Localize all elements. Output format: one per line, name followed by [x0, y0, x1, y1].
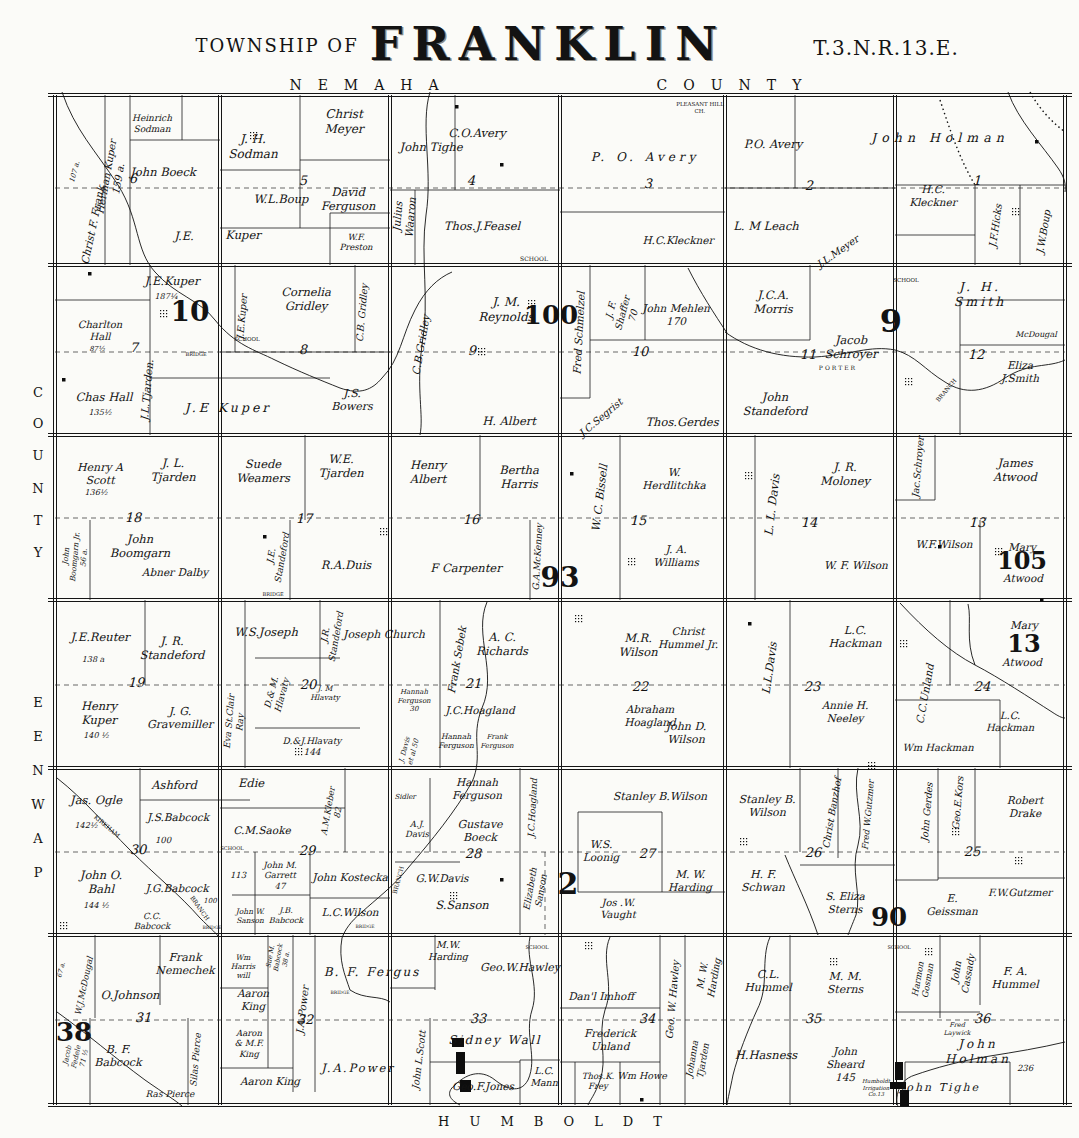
owner-label: L.C. Hackman	[986, 710, 1034, 734]
owner-label: W.J.McDougal	[73, 956, 96, 1016]
owner-label: Thos.Gerdes	[645, 415, 718, 429]
north-county-label: NEMAHA	[289, 77, 454, 94]
school-label: SCHOOL	[520, 255, 548, 262]
section-number: 16	[463, 512, 480, 528]
bridge-label: BRIDGE	[185, 351, 206, 357]
owner-label: 100	[203, 897, 216, 906]
owner-label: M. W. Harding	[693, 955, 723, 998]
owner-label: E. Geissman	[926, 892, 978, 918]
owner-label: L.C. Hackman	[828, 624, 881, 651]
owner-label: J. A. Williams	[653, 543, 699, 569]
owner-label: Geo.F.Jones	[452, 1080, 514, 1093]
owner-label: James Atwood	[993, 456, 1037, 484]
owner-label: Dan'l Imhoff	[568, 990, 634, 1003]
creek-label: BRANCH	[189, 894, 211, 921]
owner-label: J. G. Gravemiller	[147, 705, 213, 732]
owner-label: Cornelia Gridley	[281, 285, 331, 313]
owner-label: P.O. Avery	[744, 137, 802, 151]
owner-label: Herman Kuper 159 a.	[94, 139, 131, 217]
owner-label: J. H. Smith	[931, 279, 1030, 310]
section-number: 23	[804, 679, 821, 695]
owner-label: J.E.Reuter	[70, 630, 129, 644]
owner-label: Atwood	[1002, 656, 1042, 669]
township-range-label: T.3.N.R.13.E.	[813, 36, 959, 60]
owner-label: J.A.Power	[294, 985, 312, 1035]
plat-map: TOWNSHIP OFFRANKLINT.3.N.R.13.E.NEMAHACO…	[0, 0, 1079, 1138]
owner-label: Stanley B.Wilson	[613, 790, 707, 803]
owner-label: W.S. Loonig	[583, 838, 619, 864]
owner-label: Fred Laywick	[943, 1022, 970, 1038]
owner-label: 236	[1017, 1063, 1033, 1073]
owner-label: W. Herdlitchka	[642, 466, 705, 492]
owner-label: J. M. Reynolds	[478, 295, 534, 324]
owner-label: 144 ½	[83, 901, 109, 911]
owner-label: John Boomgarn Jr. 56 a.	[59, 531, 91, 583]
owner-label: Humboldt Irrigation Co.13	[862, 1078, 890, 1098]
owner-label: L.C. Mann	[530, 1065, 558, 1088]
owner-label: M. M. Sterns	[827, 970, 863, 997]
owner-label: L. L. Davis	[761, 473, 782, 536]
owner-label: J.E. Standeford	[262, 530, 292, 584]
owner-label: 100	[155, 835, 171, 845]
west-county-letter: W	[31, 797, 44, 813]
owner-label: L. M Leach	[733, 219, 799, 233]
owner-label: Thos.K. Frey	[582, 1071, 614, 1092]
owner-label: Hannah Ferguson 30	[397, 688, 430, 714]
map-title-prefix: TOWNSHIP OF	[195, 35, 358, 57]
owner-label: M. W. Harding	[668, 868, 712, 894]
owner-label: Hannah Ferguson	[438, 732, 474, 750]
section-number: 33	[470, 1011, 487, 1027]
owner-label: O.Johnson	[101, 988, 160, 1002]
owner-label: Eva St.Clair Ray	[222, 694, 249, 751]
owner-label: John W. Sanson	[236, 907, 264, 925]
owner-label: John Boeck	[130, 165, 196, 179]
owner-label: 187¼	[154, 292, 177, 302]
owner-label: Annie H. Neeley	[822, 699, 869, 725]
owner-label: John Kostecka	[312, 871, 388, 884]
owner-label: Jas. Ogle	[70, 793, 122, 807]
owner-label: R.A.Duis	[321, 558, 371, 572]
creek-label: BRANCH	[934, 377, 958, 403]
owner-label: John Tighe	[900, 1081, 980, 1094]
owner-label: Bertha Harris	[499, 463, 539, 491]
owner-label: A.M.Kleber 82	[319, 786, 348, 838]
owner-label: Johanna Tjarden	[684, 1040, 712, 1080]
owner-label: Julius Waaron	[389, 196, 418, 239]
owner-label: Christ Banzhof	[820, 777, 844, 850]
owner-label: Elizabeth Sanson	[521, 867, 550, 913]
owner-label: 113	[230, 870, 246, 880]
district-number: 90	[871, 902, 907, 934]
north-county-label: COUNTY	[657, 77, 818, 94]
bridge-label: BRIDGE	[356, 924, 375, 929]
district-number: 9	[880, 302, 902, 341]
owner-label: J. R. Standeford	[140, 634, 205, 662]
owner-label: Wm Howe	[617, 1070, 667, 1082]
section-number: 15	[630, 513, 647, 529]
west-county-letter: T	[34, 513, 43, 529]
owner-label: H. F. Schwan	[741, 868, 785, 895]
west-county-letter: C	[33, 385, 43, 401]
district-number: 13	[1007, 629, 1040, 658]
owner-label: B. F. Babcock	[94, 1043, 141, 1070]
owner-label: A. C. Richards	[476, 630, 528, 658]
owner-label: W.F. Preston	[339, 232, 372, 253]
owner-label: H.C.Kleckner	[642, 234, 713, 247]
owner-label: John Mehlen 170	[642, 302, 709, 328]
section-number: 13	[969, 515, 986, 531]
owner-label: Aaron & M.F. King	[235, 1028, 264, 1059]
district-number: 93	[541, 561, 580, 595]
owner-label: B. F. Fergus	[324, 965, 421, 980]
owner-label: Hannah Ferguson	[452, 776, 502, 802]
owner-label: Frank Sebek	[445, 626, 469, 695]
school-label: SCHOOL	[525, 944, 548, 950]
owner-label: 107 a.	[68, 160, 82, 183]
owner-label: J.W.Boup	[1034, 209, 1054, 255]
owner-label: D.&J.Hlavaty 144	[283, 736, 342, 758]
owner-label: Heinrich Sodman	[132, 113, 172, 135]
section-number: 25	[964, 844, 981, 860]
owner-label: 67 a.	[56, 961, 68, 979]
owner-label: G.A.McKenney	[531, 523, 545, 591]
section-number: 17	[296, 511, 313, 527]
owner-label: Wm Hackman	[902, 742, 973, 754]
owner-label: J.F.Hicks	[987, 204, 1005, 249]
section-number: 19	[128, 675, 145, 691]
owner-label: Henry A Scott	[77, 461, 123, 488]
bridge-label: BRIDGE	[331, 990, 350, 995]
section-number: 11	[800, 347, 817, 363]
owner-label: John Holman	[871, 130, 1008, 145]
school-label: SCHOOL	[893, 277, 918, 284]
owner-label: D.& M. Hlavaty	[262, 674, 292, 714]
section-number: 20	[300, 677, 317, 693]
section-number: 6	[129, 171, 137, 187]
west-county-letter: O	[33, 416, 44, 432]
owner-label: H.C. Kleckner	[909, 183, 957, 209]
owner-label: Kuper	[225, 228, 260, 242]
section-number: 8	[299, 342, 307, 358]
section-number: 10	[632, 344, 649, 360]
owner-label: J.C.Hoagland	[526, 778, 540, 838]
map-labels-layer: TOWNSHIP OFFRANKLINT.3.N.R.13.E.NEMAHACO…	[0, 0, 1079, 1138]
owner-label: H.Hasness	[735, 1048, 798, 1062]
creek-label: BRANCH	[391, 865, 405, 894]
owner-label: G.W.Davis	[415, 872, 468, 885]
west-county-letter: N	[32, 763, 43, 779]
owner-label: L.L.Davis	[760, 641, 781, 695]
owner-label: C.B.Gridley	[409, 314, 432, 376]
owner-label: J.A.Power	[321, 1061, 395, 1075]
owner-label: John L.Scott	[410, 1030, 429, 1090]
owner-label: H. Albert	[482, 414, 536, 428]
owner-label: 135½	[88, 408, 111, 418]
owner-label: Atwood	[1003, 572, 1043, 585]
owner-label: C.C. Babcock	[134, 911, 171, 932]
bridge-label: BRIDGE	[203, 925, 222, 930]
west-county-letter: P	[34, 865, 43, 881]
owner-label: McDougal	[1015, 330, 1057, 340]
owner-label: 87½	[89, 345, 105, 354]
section-number: 24	[974, 679, 991, 695]
owner-label: Sidler	[394, 793, 415, 802]
owner-label: F.W.Gutzmer	[988, 887, 1052, 899]
district-number: 100	[524, 300, 578, 332]
owner-label: Silas Pierce	[188, 1033, 204, 1087]
owner-label: John Holman	[928, 1037, 1029, 1066]
school-label: SCHOOL	[234, 336, 259, 343]
south-town-label: HUMBOLDT	[438, 1114, 682, 1130]
owner-label: Abraham Hoagland	[624, 703, 676, 729]
owner-label: J. M Hlavaty	[310, 684, 339, 702]
owner-label: J.L.Tjarden.	[138, 359, 156, 422]
owner-label: Ashford	[151, 778, 197, 792]
owner-label: Chas Hall	[76, 390, 133, 404]
owner-label: Jac.Schroyer	[910, 436, 927, 498]
owner-label: Henry Albert	[410, 458, 446, 486]
owner-label: J.E.Kuper	[234, 294, 249, 340]
map-title: FRANKLIN	[370, 16, 727, 72]
owner-label: John Standeford	[743, 390, 808, 418]
section-number: 21	[465, 676, 482, 692]
owner-label: J.G.Babcock	[145, 882, 208, 895]
owner-label: C.L. Hummel	[744, 968, 792, 995]
section-number: 1	[973, 173, 981, 189]
section-number: 2	[805, 178, 813, 194]
owner-label: John Gerdes	[919, 782, 936, 842]
owner-label: John Boomgarn	[110, 532, 170, 560]
owner-label: W. C. Bissell	[589, 464, 611, 533]
owner-label: Henry Kuper	[81, 699, 117, 727]
church-label: PLEASANT HILL CH.	[676, 101, 724, 114]
owner-label: Suede Weamers	[236, 457, 290, 485]
creek-label: KIRKHAM	[93, 813, 122, 839]
section-number: 12	[968, 347, 985, 363]
owner-label: John O. Bahl	[80, 868, 122, 896]
owner-label: Christ Hummel Jr.	[658, 625, 718, 651]
owner-label: Robert Drake	[998, 794, 1052, 820]
owner-label: Frederick Unland	[584, 1027, 636, 1053]
owner-label: Thos.J.Feasel	[444, 219, 520, 233]
section-number: 30	[130, 842, 147, 858]
creek-label: PORTER	[819, 364, 857, 371]
owner-label: John Cassady	[947, 951, 977, 994]
owner-label: M.W. Harding	[428, 939, 468, 962]
section-number: 9	[468, 343, 476, 359]
owner-label: J.R. Standeford	[316, 609, 346, 663]
district-number: 38	[56, 1017, 92, 1049]
owner-label: Gustave Boeck	[457, 818, 502, 845]
owner-label: S.Sanson	[435, 898, 489, 912]
owner-label: J.S. Bowers	[331, 387, 373, 414]
section-number: 32	[297, 1012, 314, 1028]
owner-label: J.S.Babcock	[147, 811, 209, 824]
owner-label: J. Davis et al 50	[397, 736, 420, 766]
owner-label: Geo.E.Kors	[950, 776, 966, 831]
owner-label: Christ Meyer	[324, 107, 363, 136]
owner-label: Aaron King	[240, 1075, 300, 1088]
owner-label: 140 ½	[83, 731, 109, 741]
owner-label: P. O. Avery	[591, 150, 700, 165]
owner-label: W. F. Wilson	[824, 559, 888, 572]
owner-label: W.L.Boup	[254, 192, 309, 206]
owner-label: S. Eliza Sterns	[825, 890, 865, 916]
owner-label: Sidney Wall	[448, 1033, 541, 1048]
owner-label: Jacob Schroyer	[825, 333, 878, 361]
section-number: 34	[639, 1011, 656, 1027]
section-number: 18	[125, 510, 142, 526]
owner-label: F Carpenter	[430, 561, 501, 575]
district-number: 2	[558, 866, 579, 903]
owner-label: C.C.Unland	[913, 663, 936, 725]
owner-label: Frank Nemechek	[155, 951, 215, 978]
section-number: 35	[805, 1011, 822, 1027]
west-county-letter: N	[32, 481, 43, 497]
owner-label: John D. Wilson	[666, 720, 707, 747]
section-number: 14	[801, 515, 818, 531]
owner-label: J.B. Babcock	[269, 906, 303, 926]
owner-label: J. H. Sodman	[228, 132, 277, 161]
owner-label: 142½	[74, 821, 97, 831]
section-number: 7	[130, 340, 138, 356]
owner-label: Mary	[1008, 541, 1036, 554]
section-number: 5	[299, 173, 307, 189]
bridge-label: BRIDGE	[262, 591, 283, 597]
west-county-letter: E	[33, 729, 43, 745]
owner-label: Frank Ferguson	[480, 733, 513, 750]
west-county-letter: U	[33, 448, 44, 464]
owner-label: 136½	[84, 488, 107, 498]
section-number: 28	[465, 846, 482, 862]
owner-label: John Tighe	[400, 140, 463, 154]
section-number: 4	[467, 173, 475, 189]
owner-label: Eliza J.Smith	[991, 359, 1050, 385]
section-number: 29	[299, 843, 316, 859]
owner-label: J.C.A. Morris	[753, 288, 792, 316]
owner-label: J.E.	[174, 229, 193, 243]
owner-label: 138 a	[82, 655, 105, 665]
owner-label: John Sheard 145	[826, 1045, 864, 1083]
west-county-letter: A	[33, 831, 42, 847]
owner-label: Stanley B. Wilson	[739, 793, 796, 820]
owner-label: Wm Harris will	[231, 953, 255, 980]
section-number: 36	[974, 1011, 991, 1027]
owner-label: W.S.Joseph	[234, 625, 298, 639]
owner-label: C.B. Gridley	[354, 283, 371, 342]
west-county-letter: Y	[34, 545, 43, 561]
district-number: 10	[171, 295, 210, 329]
section-number: 22	[632, 679, 649, 695]
school-label: SCHOOL	[887, 944, 910, 950]
owner-label: J.C.Segrist	[577, 396, 626, 440]
school-label: SCHOOL	[220, 845, 243, 851]
section-number: 31	[135, 1010, 152, 1026]
owner-label: Joseph Church	[343, 628, 425, 641]
owner-label: J. F. Shaffer 70	[601, 292, 644, 335]
owner-label: F. A. Hummel	[991, 965, 1039, 992]
owner-label: Aaron King	[237, 987, 269, 1013]
owner-label: W.F.Wilson	[915, 538, 972, 551]
owner-label: Fred W.Gutzmer	[860, 779, 876, 850]
owner-label: Mary	[1010, 619, 1038, 632]
owner-label: J. R. Moloney	[820, 460, 870, 488]
owner-label: Abner Dalby	[142, 566, 208, 579]
owner-label: Fred Schmelzel	[570, 291, 587, 375]
owner-label: M.R. Wilson	[618, 631, 657, 659]
owner-label: C.O.Avery	[448, 126, 506, 140]
owner-label: Sue M. Babcock 38 a.	[265, 942, 293, 974]
owner-label: Jacob Fedele 71 ½	[61, 1043, 91, 1071]
owner-label: John M. Garrett 47	[263, 860, 297, 891]
owner-label: L.C.Wilson	[321, 906, 378, 919]
owner-label: Geo. W. Hawley	[663, 960, 682, 1040]
owner-label: W.E. Tjarden	[318, 452, 363, 480]
owner-label: J.E.Kuper	[145, 274, 200, 288]
owner-label: Jos .W. Vaught	[600, 897, 636, 921]
owner-label: Christ F. Frank	[78, 184, 107, 265]
owner-label: J.E Kuper	[185, 400, 272, 415]
owner-label: David Ferguson	[321, 185, 376, 213]
owner-label: Geo.W.Hawley	[480, 961, 560, 974]
owner-label: J.L.Meyer	[815, 233, 862, 271]
owner-label: J. L. Tjarden	[150, 456, 195, 484]
owner-label: Edie	[238, 776, 264, 790]
owner-label: Charlton Hall	[78, 319, 123, 343]
west-county-letter: E	[33, 695, 43, 711]
owner-label: C.M.Saoke	[233, 824, 290, 837]
owner-label: Harmon Gosman	[910, 961, 937, 999]
section-number: 27	[639, 846, 656, 862]
owner-label: J.C.Hoagland	[445, 704, 514, 717]
district-number: 105	[997, 546, 1047, 575]
owner-label: A.J. Davis	[405, 819, 429, 840]
owner-label: Ras Pierce	[146, 1089, 195, 1100]
section-number: 3	[644, 176, 652, 192]
section-number: 26	[805, 845, 822, 861]
